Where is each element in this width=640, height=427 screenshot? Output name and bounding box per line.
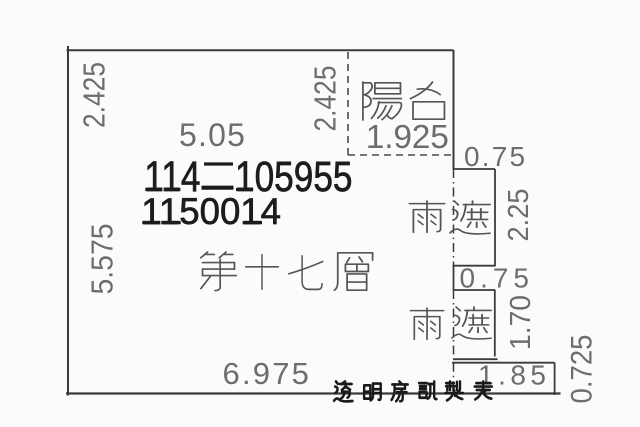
svg-text:0.725: 0.725: [565, 335, 598, 404]
svg-text:0.75: 0.75: [460, 263, 535, 294]
svg-text:2.425: 2.425: [77, 62, 112, 128]
svg-text:2.425: 2.425: [308, 66, 343, 132]
svg-text:1.70: 1.70: [505, 295, 537, 350]
svg-text:6.975: 6.975: [223, 356, 312, 391]
svg-text:1150014: 1150014: [141, 191, 281, 232]
svg-text:5.575: 5.575: [85, 224, 120, 295]
svg-text:1.925: 1.925: [366, 119, 449, 156]
svg-text:2.25: 2.25: [503, 189, 535, 242]
svg-text:0.75: 0.75: [464, 141, 527, 172]
svg-text:5.05: 5.05: [179, 117, 246, 153]
